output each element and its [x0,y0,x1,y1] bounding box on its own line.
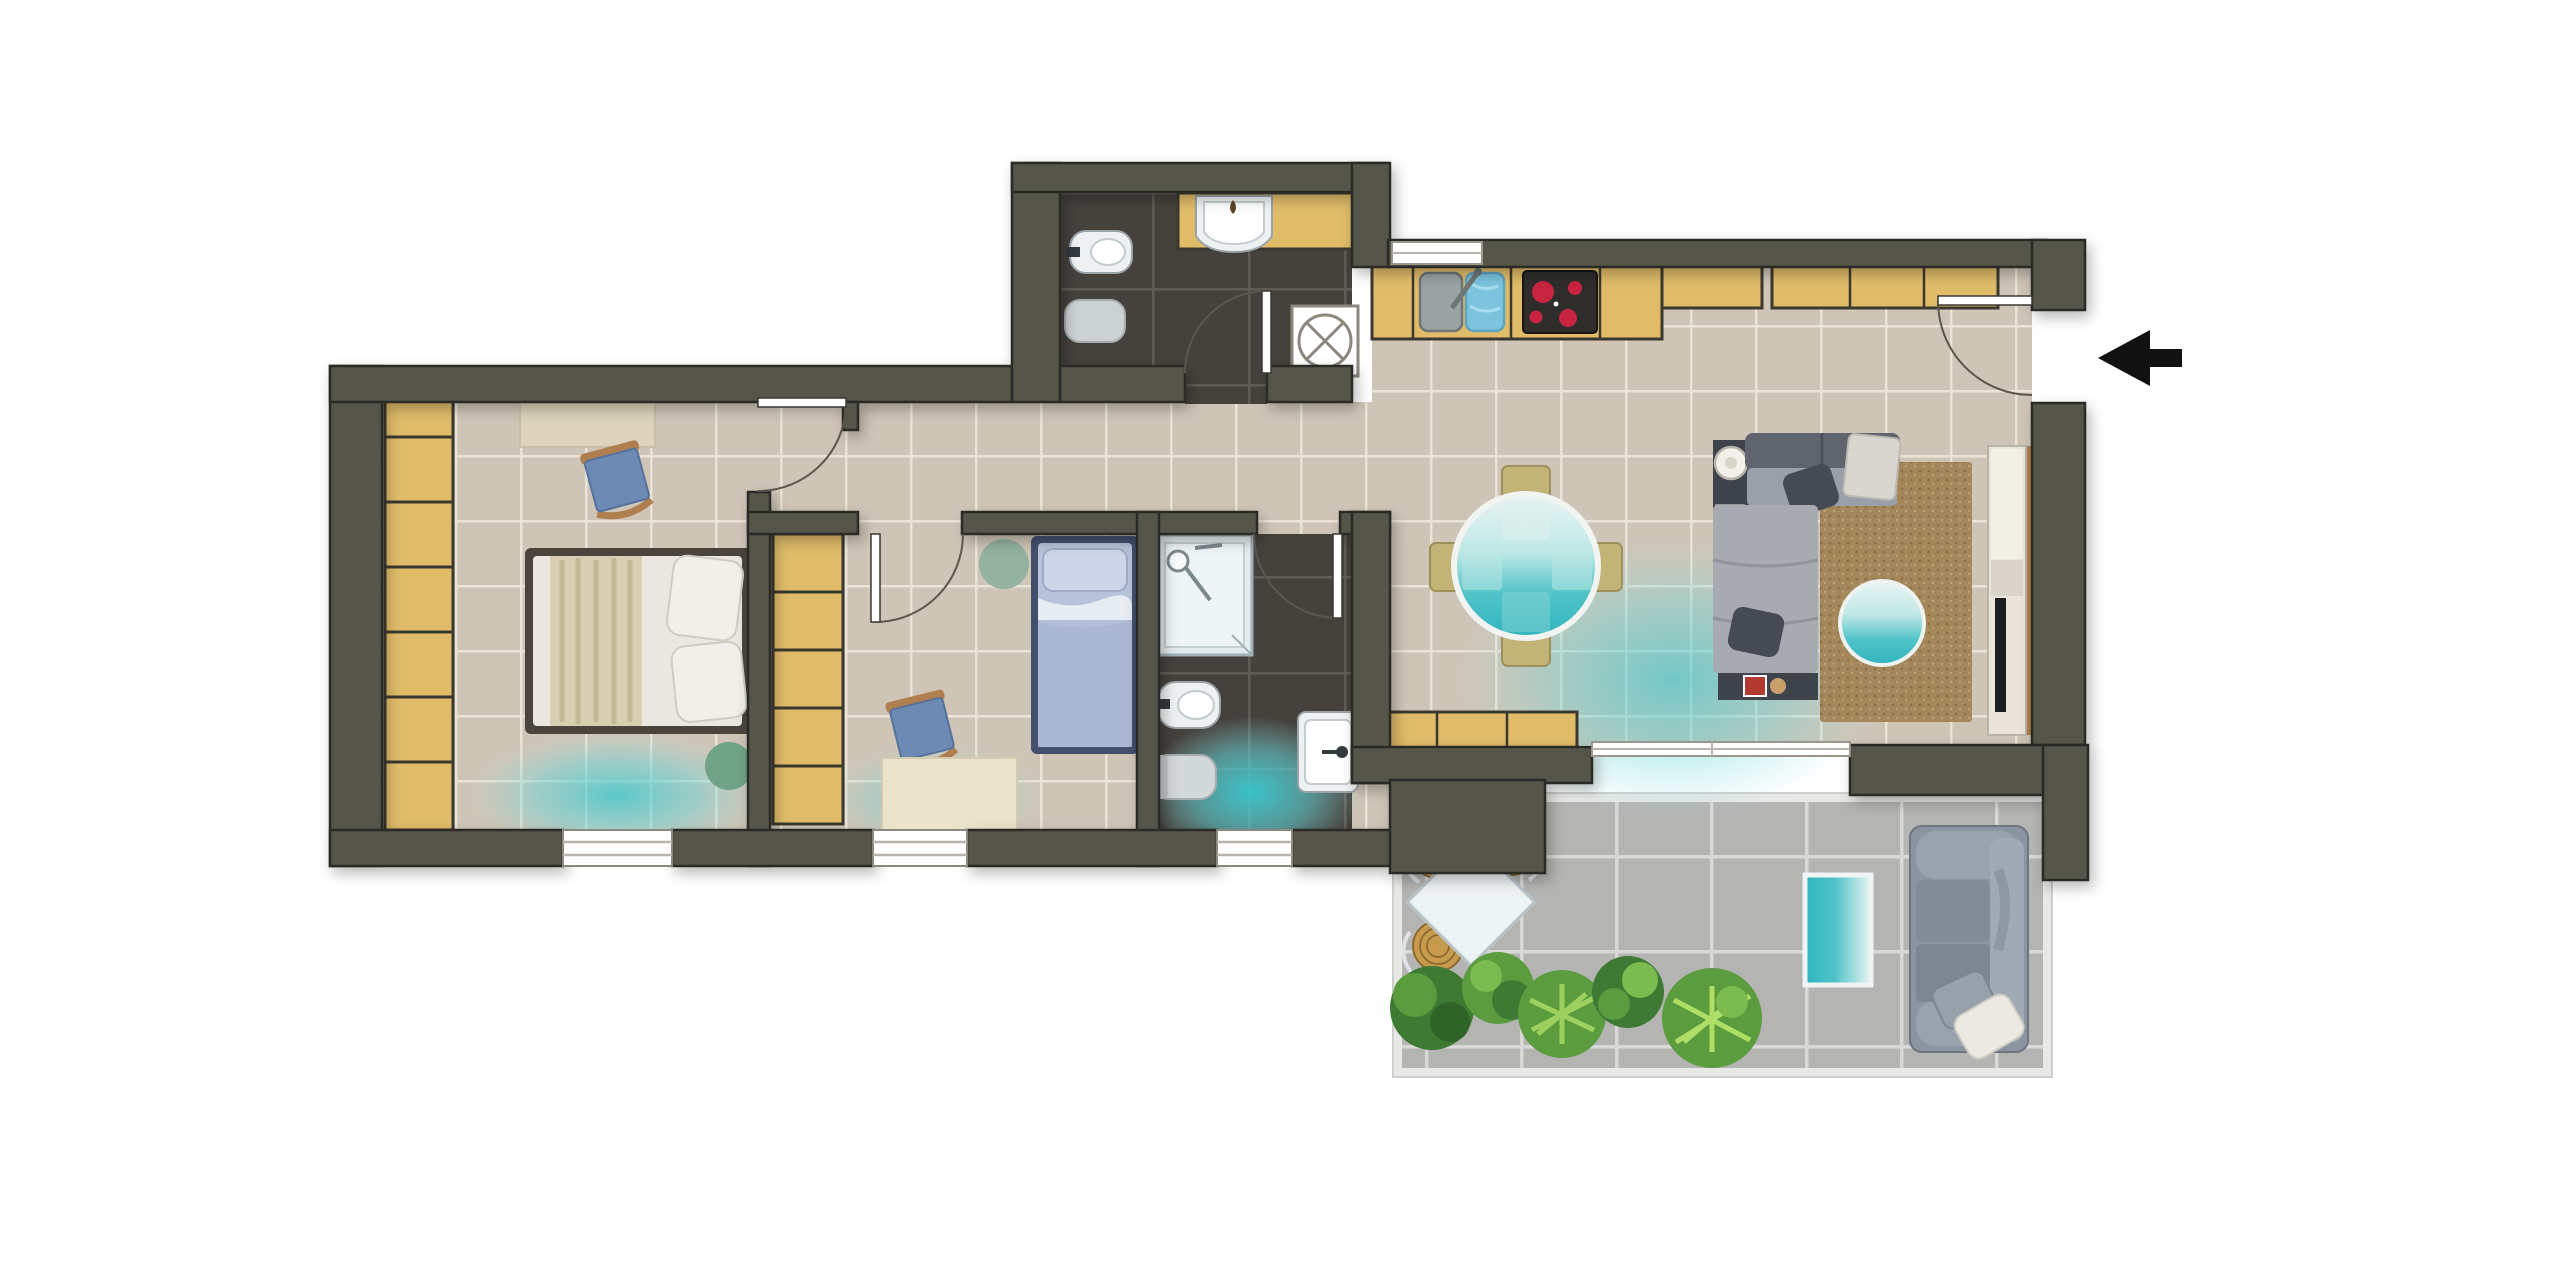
entrance-arrow-icon [2098,330,2182,386]
wall-bath-top-left [1012,163,1060,402]
window-bedroom-master [563,830,672,866]
burner [1532,281,1554,303]
sideboard [1367,712,1577,748]
wall-bedroom2-top-mid [962,512,1257,534]
wall-dining-bottom [1352,747,1592,783]
wall-entrance-upper [2032,240,2085,310]
door-leaf [1333,534,1342,618]
window-bathroom-second [1217,830,1292,866]
wall-bottom-4 [1292,830,1402,866]
tv-unit [1988,446,2033,735]
round-pouf [1840,581,1924,665]
wall-bedroom2-top-left [748,512,858,534]
plant [1390,966,1474,1050]
kitchen-sink [1420,268,1504,331]
rug-round-green [979,539,1029,589]
door-leaf [871,534,880,622]
bottom-console [1718,673,1818,700]
book [1744,676,1766,696]
plant [1662,968,1762,1068]
washbasin-top [1196,196,1272,252]
door-leaf [758,398,846,407]
blanket [1038,620,1132,747]
wall-kitchen-top [1388,240,2046,267]
burner [1530,311,1543,324]
pouf-round [705,742,753,790]
window-kitchen-top [1392,242,1482,264]
washbasin-second [1298,712,1358,792]
place-setting [1462,542,1502,590]
kitchen-counter [1372,265,1662,339]
wall-terrace-block [1390,780,1545,873]
window-living-slider [1592,742,1850,756]
teal-mat [1805,875,1871,985]
pillow [670,640,748,723]
upper-cabinet [1662,265,1762,308]
pillow [665,554,744,642]
plant [1592,956,1664,1028]
plant [1518,970,1606,1058]
bidet-tap [1066,247,1080,257]
place-setting [1502,500,1550,540]
tv-screen [1995,598,2006,712]
burner [1559,309,1577,327]
wall-bath-top-right [1352,163,1390,267]
single-bed [1031,536,1139,754]
place-setting [1552,542,1592,590]
wall-bedroom-divider [748,492,770,866]
wardrobe-master [385,390,453,830]
toilet-top [1065,300,1125,342]
wall-bath-bottom-right [1267,366,1352,402]
wall-bath2-right [1352,512,1390,783]
wardrobe-second [773,534,843,824]
double-bed [525,548,752,734]
wall-bath-bottom-left [1060,366,1185,402]
shower [1157,535,1252,655]
wall-living-bottom [1850,745,2046,795]
round-glass-table [1454,494,1598,638]
bidet-top [1066,231,1132,273]
door-leaf [1938,296,2032,305]
wall-bottom-3 [967,830,1217,866]
wall-bed2-bath2 [1137,512,1159,866]
pillow [1043,549,1127,591]
shower-head [1168,551,1188,571]
wall-top-left [330,366,1012,402]
outdoor-sofa [1910,826,2028,1063]
place-setting [1502,592,1550,632]
toilet-second [1152,755,1216,799]
window-bedroom-second [873,830,967,866]
floor-plan-canvas [0,0,2560,1264]
floor-plan [0,0,2560,1264]
cooktop [1523,271,1597,333]
wall-bottom-1 [330,830,563,866]
door-leaf [1262,291,1271,373]
floor-bathroom-top-doorway [1185,366,1267,404]
wall-bath-top [1012,163,1388,192]
wall-left-outer [330,366,382,866]
wall-right-outer [2032,403,2085,745]
bidet-second [1156,682,1220,728]
seat [1916,880,1990,942]
desk [882,758,1017,830]
wall-bottom-2 [672,830,873,866]
burner [1568,281,1582,295]
throw-blanket [1843,433,1901,500]
wall-terrace-column [2043,745,2088,880]
